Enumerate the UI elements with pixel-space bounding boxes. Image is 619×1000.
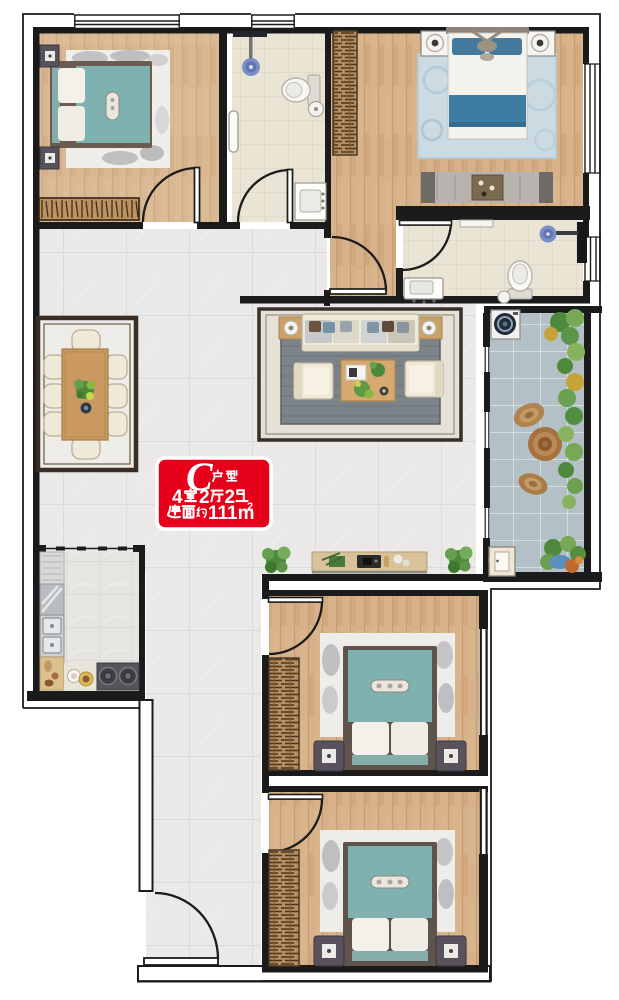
svg-text:4: 4 — [172, 487, 183, 508]
svg-text:2: 2 — [247, 501, 253, 513]
